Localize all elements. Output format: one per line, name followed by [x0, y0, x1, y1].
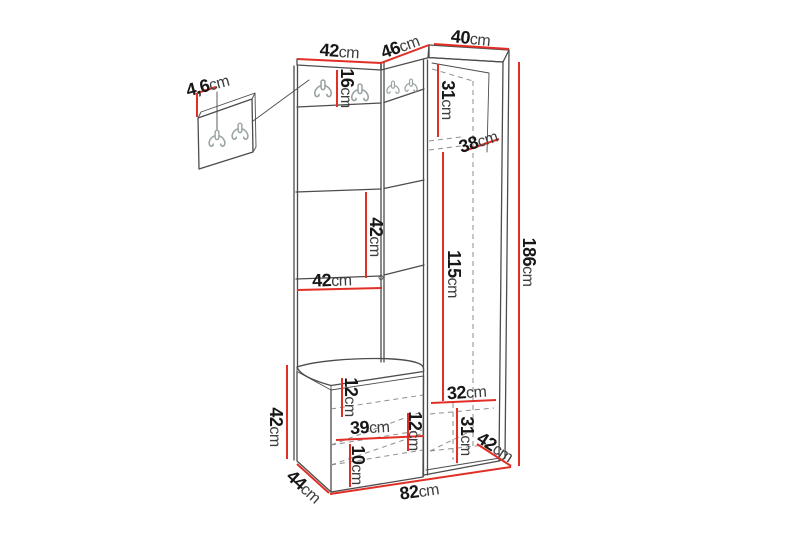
dimension-label-top-width-middle: 46cm [378, 30, 422, 62]
dimension-label-panel-width: 42cm [312, 269, 352, 290]
dimension-label-total-width: 82cm [398, 478, 440, 503]
dimension-label-wardrobe-bottom-width: 32cm [446, 381, 487, 404]
wardrobe [424, 45, 509, 475]
dimension-label-top-width-left: 42cm [319, 40, 360, 63]
dimension-label-seat-section: 12cm [341, 377, 361, 417]
dimension-label-bench-height: 42cm [266, 407, 286, 447]
dimension-label-top-width-right: 40cm [450, 26, 491, 50]
dimension-label-total-height: 186cm [519, 238, 539, 287]
dimension-label-wardrobe-top-section: 31cm [438, 80, 458, 120]
dimension-label-bench-interior-width: 39cm [350, 416, 391, 438]
coat-hook-icon [387, 81, 399, 93]
dimension-label-wall-panel-thickness: 4,6cm [184, 70, 232, 101]
dimension-label-wardrobe-bottom-depth: 42cm [473, 428, 517, 466]
dimension-lines [287, 44, 519, 494]
dimension-label-bench-depth: 44cm [283, 466, 326, 507]
dimension-label-wardrobe-upper-depth: 38cm [456, 126, 500, 157]
coat-hook-icon [405, 79, 417, 91]
left-panel [294, 59, 384, 460]
dimension-label-mid-section-height: 42cm [366, 217, 386, 257]
coat-hook-icon [232, 123, 248, 139]
dimension-label-bench-bottom-section: 10cm [348, 445, 368, 485]
dimension-label-wardrobe-interior-height: 115cm [444, 250, 464, 298]
diagram-svg: 4,6cm 42cm 46cm 40cm 16cm 31cm 38cm 42cm… [0, 0, 800, 533]
dimension-label-bench-mid-section: 12cm [405, 411, 425, 451]
furniture-dimension-diagram: 4,6cm 42cm 46cm 40cm 16cm 31cm 38cm 42cm… [0, 0, 800, 533]
dimension-label-wardrobe-bottom-section: 31cm [457, 416, 477, 456]
coat-hook-icon [315, 80, 331, 97]
pointer-line [253, 80, 309, 121]
dimension-labels: 4,6cm 42cm 46cm 40cm 16cm 31cm 38cm 42cm… [184, 26, 539, 507]
coat-hook-icon [209, 130, 225, 146]
dimension-label-hook-strip-height: 16cm [337, 68, 357, 108]
